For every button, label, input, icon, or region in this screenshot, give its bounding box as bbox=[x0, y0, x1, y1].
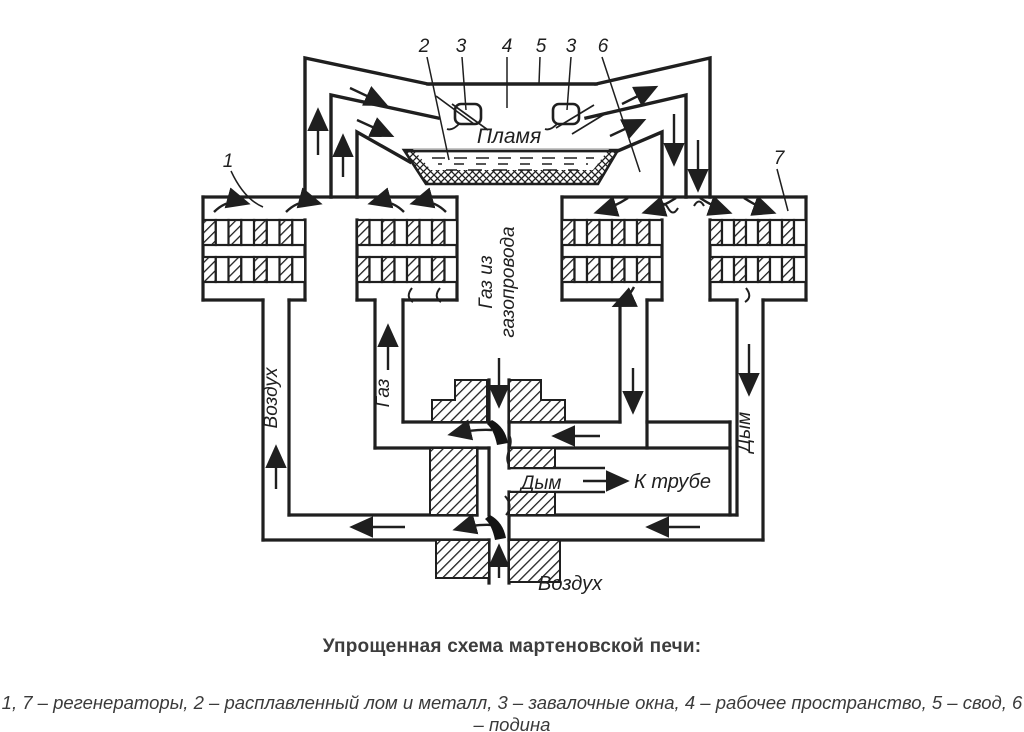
gas-from-pipeline-line2: газопровода bbox=[498, 226, 519, 337]
callout-3b: 3 bbox=[566, 36, 577, 57]
to-chimney-label: К трубе bbox=[634, 471, 711, 493]
charging-window-left bbox=[455, 104, 481, 124]
figure-legend: 1, 7 – регенераторы, 2 – расплавленный л… bbox=[0, 692, 1024, 732]
smoke-center-label: Дым bbox=[519, 473, 561, 494]
furnace-diagram: 2 3 4 5 3 6 1 7 Пламя Газ изгазопровода … bbox=[0, 0, 1024, 732]
air-bottom-label: Воздух bbox=[538, 573, 603, 595]
callout-1: 1 bbox=[223, 151, 234, 172]
figure-caption: Упрощенная схема мартеновской печи: bbox=[0, 636, 1024, 658]
air-left-label: Воздух bbox=[261, 366, 282, 428]
air-valve-flap bbox=[485, 515, 506, 540]
callout-6: 6 bbox=[598, 36, 609, 57]
smoke-right-label: Дым bbox=[734, 412, 755, 454]
callout-5: 5 bbox=[536, 36, 547, 57]
furnace-scheme-figure: 2 3 4 5 3 6 1 7 Пламя Газ изгазопровода … bbox=[0, 0, 1024, 732]
gas-from-pipeline-label: Газ изгазопровода bbox=[476, 226, 519, 337]
callout-2: 2 bbox=[418, 36, 430, 57]
gas-left-label: Газ bbox=[373, 378, 394, 407]
gas-valve-flap bbox=[487, 420, 508, 445]
callout-7: 7 bbox=[774, 148, 786, 169]
flame-label: Пламя bbox=[477, 125, 541, 148]
callout-3a: 3 bbox=[456, 36, 467, 57]
callout-4: 4 bbox=[502, 36, 513, 57]
gas-from-pipeline-line1: Газ из bbox=[476, 255, 497, 309]
bath-hearth bbox=[404, 149, 618, 184]
